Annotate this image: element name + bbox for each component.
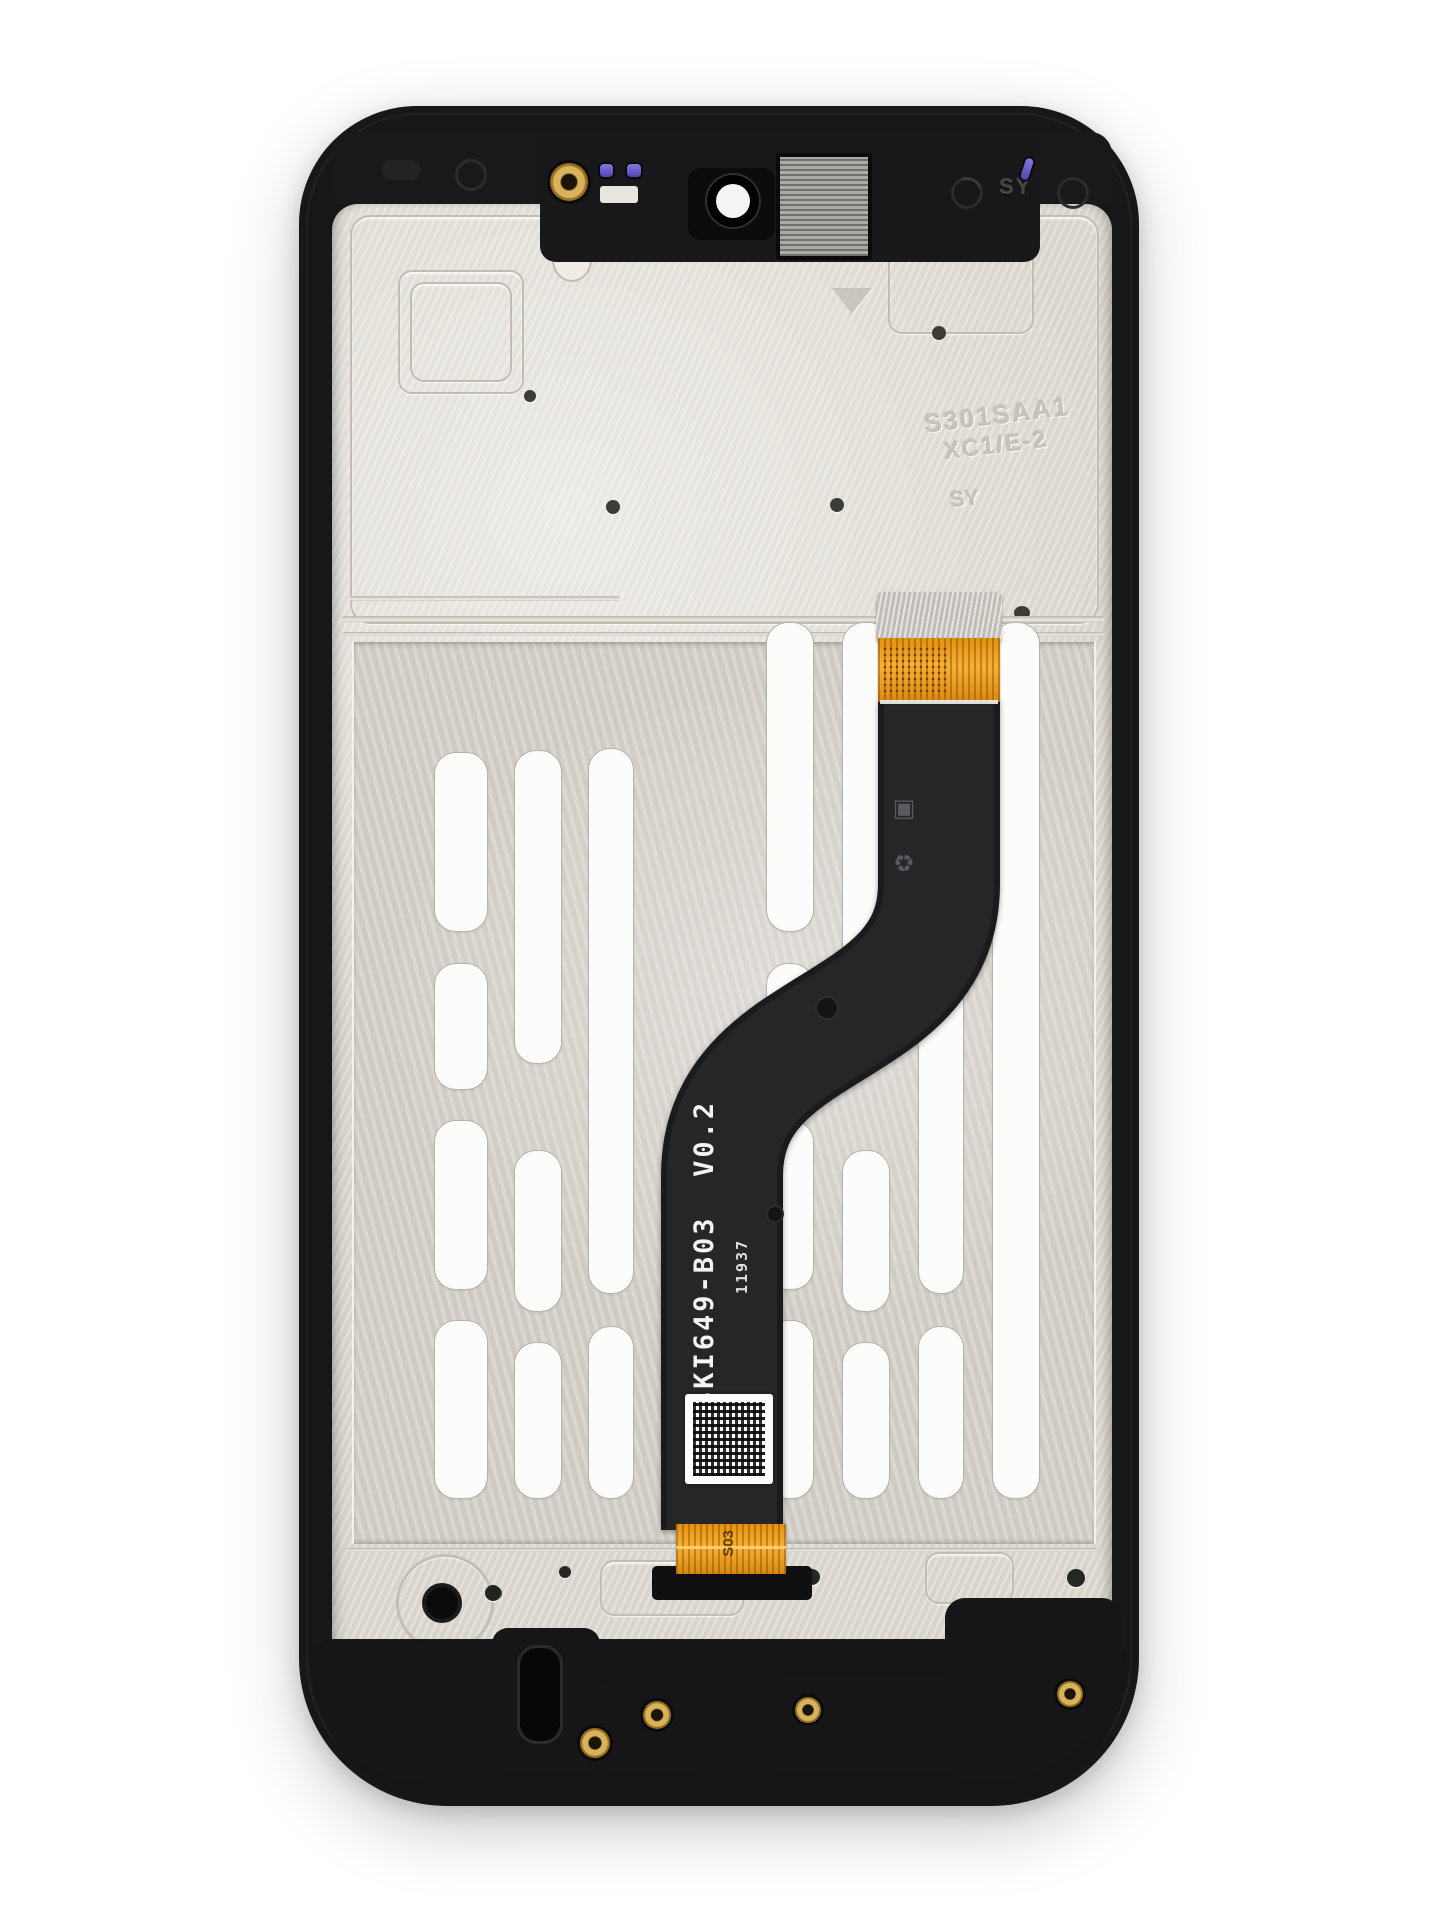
photo-canvas: S301SAA1 XC1/E-2 SY SY-A20S [0,0,1445,1927]
connector-mark: S03 [720,1530,737,1557]
flex-top-connector [878,638,1000,702]
flex-dome [816,997,838,1019]
flex-white-stripe [880,700,998,704]
recycle-marks: ♻ ▣ [891,772,927,876]
flex-dome [767,1206,783,1222]
flex-contact-grid [882,646,948,696]
qr-code [693,1402,765,1476]
flex-top-stiffener [876,592,1002,644]
flex-bottom-connector: S03 [676,1524,786,1574]
flex-date-code: 11937 [733,1222,755,1294]
flex-model-code: SKI649-B03 V0.2 [689,1140,731,1408]
qr-code-label [685,1394,773,1484]
phone-frame-assembly: S301SAA1 XC1/E-2 SY SY-A20S [299,106,1139,1806]
